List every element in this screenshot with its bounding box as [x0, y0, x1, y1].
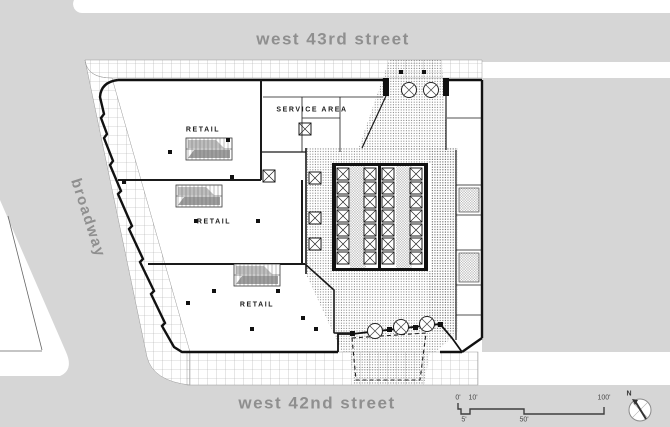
room-label-retail-upper: RETAIL: [186, 127, 220, 134]
escalator-icon: [176, 185, 222, 207]
escalator-icon: [186, 138, 232, 160]
north-block: [73, 0, 670, 13]
room-label-retail-middle: RETAIL: [197, 219, 231, 226]
east-block-north-strip: [482, 62, 670, 78]
scale-tick-50: 50': [519, 417, 528, 424]
north-arrow-icon: [629, 399, 651, 421]
escalator-icon: [234, 264, 280, 286]
scale-tick-0: 0': [455, 395, 460, 402]
floor-plan-drawing: [0, 0, 670, 427]
room-label-service-area: SERVICE AREA: [276, 107, 347, 114]
scale-tick-5: 5': [461, 417, 466, 424]
street-label-west-43rd: west 43rd street: [256, 31, 409, 48]
scale-tick-10: 10': [468, 395, 477, 402]
street-label-west-42nd: west 42nd street: [238, 395, 395, 412]
room-label-retail-lower: RETAIL: [240, 302, 274, 309]
compass-north-label: N: [626, 391, 631, 398]
site-plan: west 43rd street west 42nd street broadw…: [0, 0, 670, 427]
scale-tick-100: 100': [597, 395, 610, 402]
